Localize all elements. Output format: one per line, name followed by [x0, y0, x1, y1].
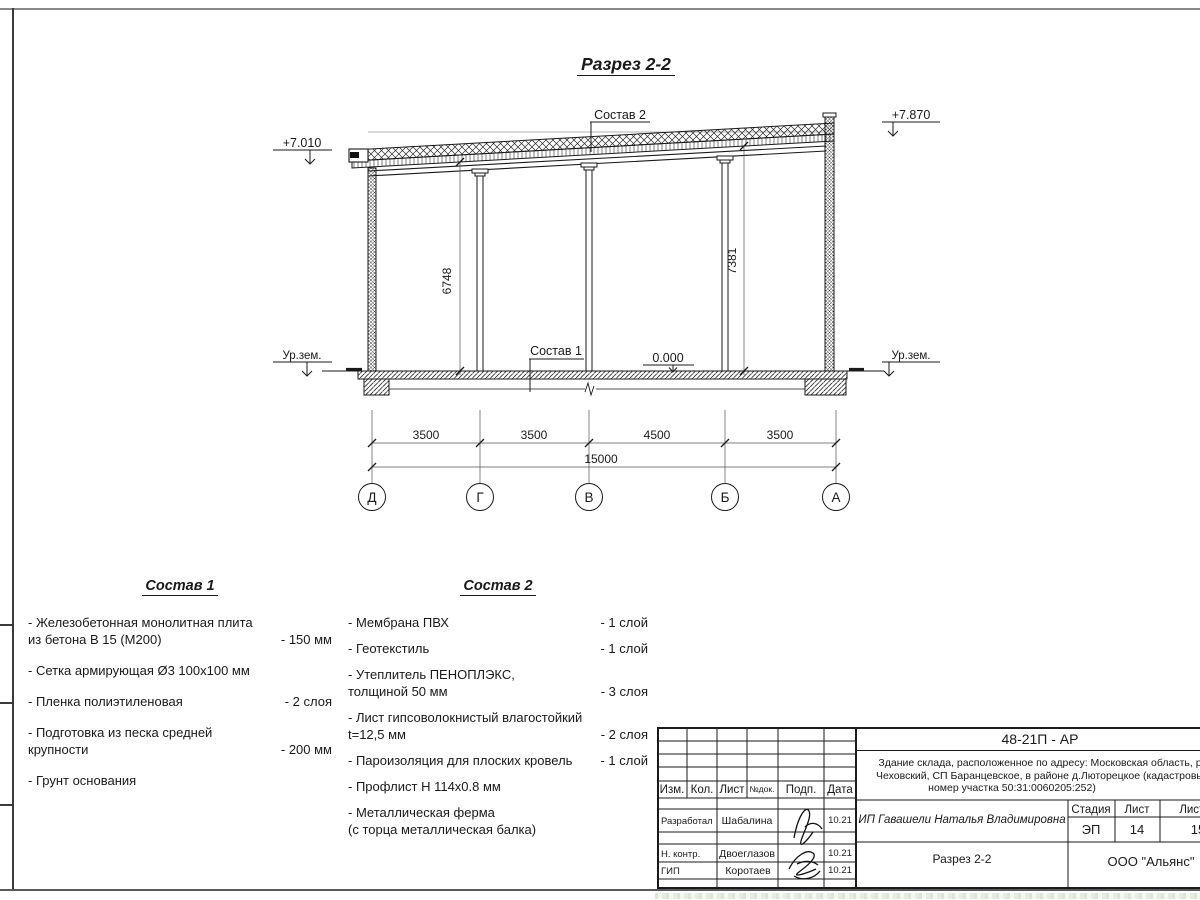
dimension-total-value: 15000 [584, 452, 618, 466]
row-date: 10.21 [828, 848, 852, 859]
axis-bubbles: Д Г В Б А [359, 484, 850, 511]
list-item: - Пароизоляция для плоских кровель - 1 с… [348, 752, 648, 769]
list-item: - Утеплитель ПЕНОПЛЭКС, толщиной 50 мм -… [348, 666, 648, 700]
left-wall [368, 168, 376, 371]
ground-line-right [846, 370, 884, 372]
signature-scribble [794, 809, 822, 844]
dimension-chain: 3500 3500 4500 3500 15000 [368, 410, 840, 484]
dimension-span-value: 3500 [521, 428, 548, 442]
sheet-title: Разрез 2-2 [933, 852, 992, 866]
layer-name: - Профлист Н 114х0.8 мм [348, 778, 501, 795]
row-name: Шабалина [722, 815, 773, 827]
layer-value: - 1 слой [600, 614, 648, 631]
axis-label: В [584, 490, 593, 505]
elevation-mark-zero: 0.000 [643, 351, 694, 372]
layer-value: - 1 слой [600, 752, 648, 769]
elevation-left-value: +7.010 [283, 136, 322, 150]
sostav2-list: - Мембрана ПВХ - 1 слой - Геотекстиль - … [348, 614, 648, 847]
sheets-label: Листов [1179, 804, 1200, 816]
layer-value: - 1 слой [600, 640, 648, 657]
document-code: 48-21П - АР [1002, 731, 1079, 747]
scan-artifact [655, 893, 1200, 899]
sostav1-title: Состав 1 [28, 578, 332, 594]
ground-level-right-label: Ур.зем. [891, 350, 930, 362]
fold-mark [0, 624, 13, 626]
axis-label: Б [721, 490, 730, 505]
layer-value: - 2 слоя [285, 693, 332, 710]
layer-name: - Мембрана ПВХ [348, 614, 449, 631]
layer-name: - Утеплитель ПЕНОПЛЭКС, толщиной 50 мм [348, 666, 515, 700]
layer-name: - Грунт основания [28, 772, 136, 789]
column [581, 163, 597, 371]
col-podp: Подп. [786, 784, 817, 796]
axis-label: Д [367, 490, 376, 505]
col-kol: Кол. [691, 784, 714, 796]
section-drawing: +7.010 +7.870 0.000 Ур.зем. Ур.зем. Сост… [250, 85, 950, 520]
col-ndoc: №док. [750, 784, 775, 794]
dimension-height-right-value: 7381 [725, 247, 739, 274]
row-role: Н. контр. [661, 849, 700, 860]
stage-value: ЭП [1082, 822, 1101, 837]
sostav1-callout: Состав 1 [529, 344, 584, 392]
row-name: Двоеглазов [719, 848, 775, 860]
layer-name: - Сетка армирующая Ø3 100х100 мм [28, 662, 250, 679]
layer-name: - Лист гипсоволокнистый влагостойкий t=1… [348, 709, 582, 743]
client-name: ИП Гавашели Наталья Владимировна [858, 814, 1065, 826]
dimension-span-value: 3500 [767, 428, 794, 442]
sheet-value: 14 [1130, 822, 1144, 837]
layer-name: - Геотекстиль [348, 640, 429, 657]
fold-mark [0, 702, 13, 704]
layer-value: - 3 слоя [601, 683, 648, 700]
layer-value: - 200 мм [281, 741, 332, 758]
sheet-label: Лист [1125, 804, 1151, 816]
list-item: - Профлист Н 114х0.8 мм [348, 778, 648, 795]
list-item: - Железобетонная монолитная плита из бет… [28, 614, 332, 648]
axis-label: Г [476, 490, 484, 505]
title-block: Изм. Кол. Лист №док. Подп. Дата Разработ… [655, 725, 1200, 893]
sheets-value: 15 [1191, 822, 1200, 837]
layer-value: - 150 мм [281, 631, 332, 648]
layer-value: - 2 слоя [601, 726, 648, 743]
layer-name: - Пленка полиэтиленовая [28, 693, 183, 710]
elevation-right-value: +7.870 [892, 108, 931, 122]
list-item: - Грунт основания [28, 772, 332, 789]
stage-label: Стадия [1071, 804, 1110, 816]
elevation-mark-left: +7.010 [273, 136, 332, 164]
floor-slab [358, 371, 847, 379]
sostav2-callout-label: Состав 2 [594, 108, 646, 122]
object-address-line: номер участка 50:31:0060205:252) [928, 782, 1096, 794]
sheet-frame-left [12, 8, 14, 890]
drawing-sheet: Разрез 2-2 [0, 0, 1200, 900]
dimension-height-left: 6748 [440, 158, 464, 375]
row-role: ГИП [661, 866, 680, 877]
list-item: - Сетка армирующая Ø3 100х100 мм [28, 662, 332, 679]
dimension-span-value: 4500 [644, 428, 671, 442]
row-name: Коротаев [725, 865, 771, 877]
layer-name: - Металлическая ферма (с торца металличе… [348, 804, 536, 838]
underfloor-line [389, 383, 805, 395]
list-item: - Лист гипсоволокнистый влагостойкий t=1… [348, 709, 648, 743]
layer-name: - Пароизоляция для плоских кровель [348, 752, 572, 769]
sostav1-list: - Железобетонная монолитная плита из бет… [28, 614, 332, 803]
col-data: Дата [827, 784, 853, 796]
signature-scribble [789, 852, 820, 879]
col-list: Лист [720, 784, 746, 796]
ground-level-mark-right: Ур.зем. [882, 350, 940, 376]
ground-level-mark-left: Ур.зем. [273, 350, 332, 376]
foundation-left [364, 379, 389, 395]
company-name: ООО "Альянс" [1108, 854, 1195, 869]
col-izm: Изм. [660, 784, 685, 796]
layer-name: - Подготовка из песка средней крупности [28, 724, 212, 758]
sheet-frame-top [0, 8, 1200, 10]
axis-label: А [831, 490, 840, 505]
eave-end-cap [349, 149, 368, 162]
object-address-line: Здание склада, расположенное по адресу: … [878, 757, 1200, 769]
ground-line-left [322, 370, 362, 372]
right-wall [823, 113, 836, 371]
list-item: - Подготовка из песка средней крупности … [28, 724, 332, 758]
elevation-mark-right: +7.870 [882, 108, 940, 136]
dimension-height-left-value: 6748 [440, 267, 454, 294]
row-role: Разработал [661, 816, 713, 827]
drawing-title: Разрез 2-2 [536, 54, 716, 75]
sostav1-callout-label: Состав 1 [530, 344, 582, 358]
foundation-right [805, 379, 846, 395]
list-item: - Металлическая ферма (с торца металличе… [348, 804, 648, 838]
ground-level-left-label: Ур.зем. [282, 350, 321, 362]
row-date: 10.21 [828, 865, 852, 876]
dimension-span-value: 3500 [413, 428, 440, 442]
list-item: - Мембрана ПВХ - 1 слой [348, 614, 648, 631]
sostav2-title: Состав 2 [348, 578, 648, 594]
column [472, 169, 488, 371]
list-item: - Геотекстиль - 1 слой [348, 640, 648, 657]
list-item: - Пленка полиэтиленовая - 2 слоя [28, 693, 332, 710]
elevation-zero-value: 0.000 [652, 351, 683, 365]
fold-mark [0, 804, 13, 806]
row-date: 10.21 [828, 815, 852, 826]
layer-name: - Железобетонная монолитная плита из бет… [28, 614, 253, 648]
object-address-line: Чеховский, СП Баранцевское, в районе д.Л… [876, 770, 1200, 782]
